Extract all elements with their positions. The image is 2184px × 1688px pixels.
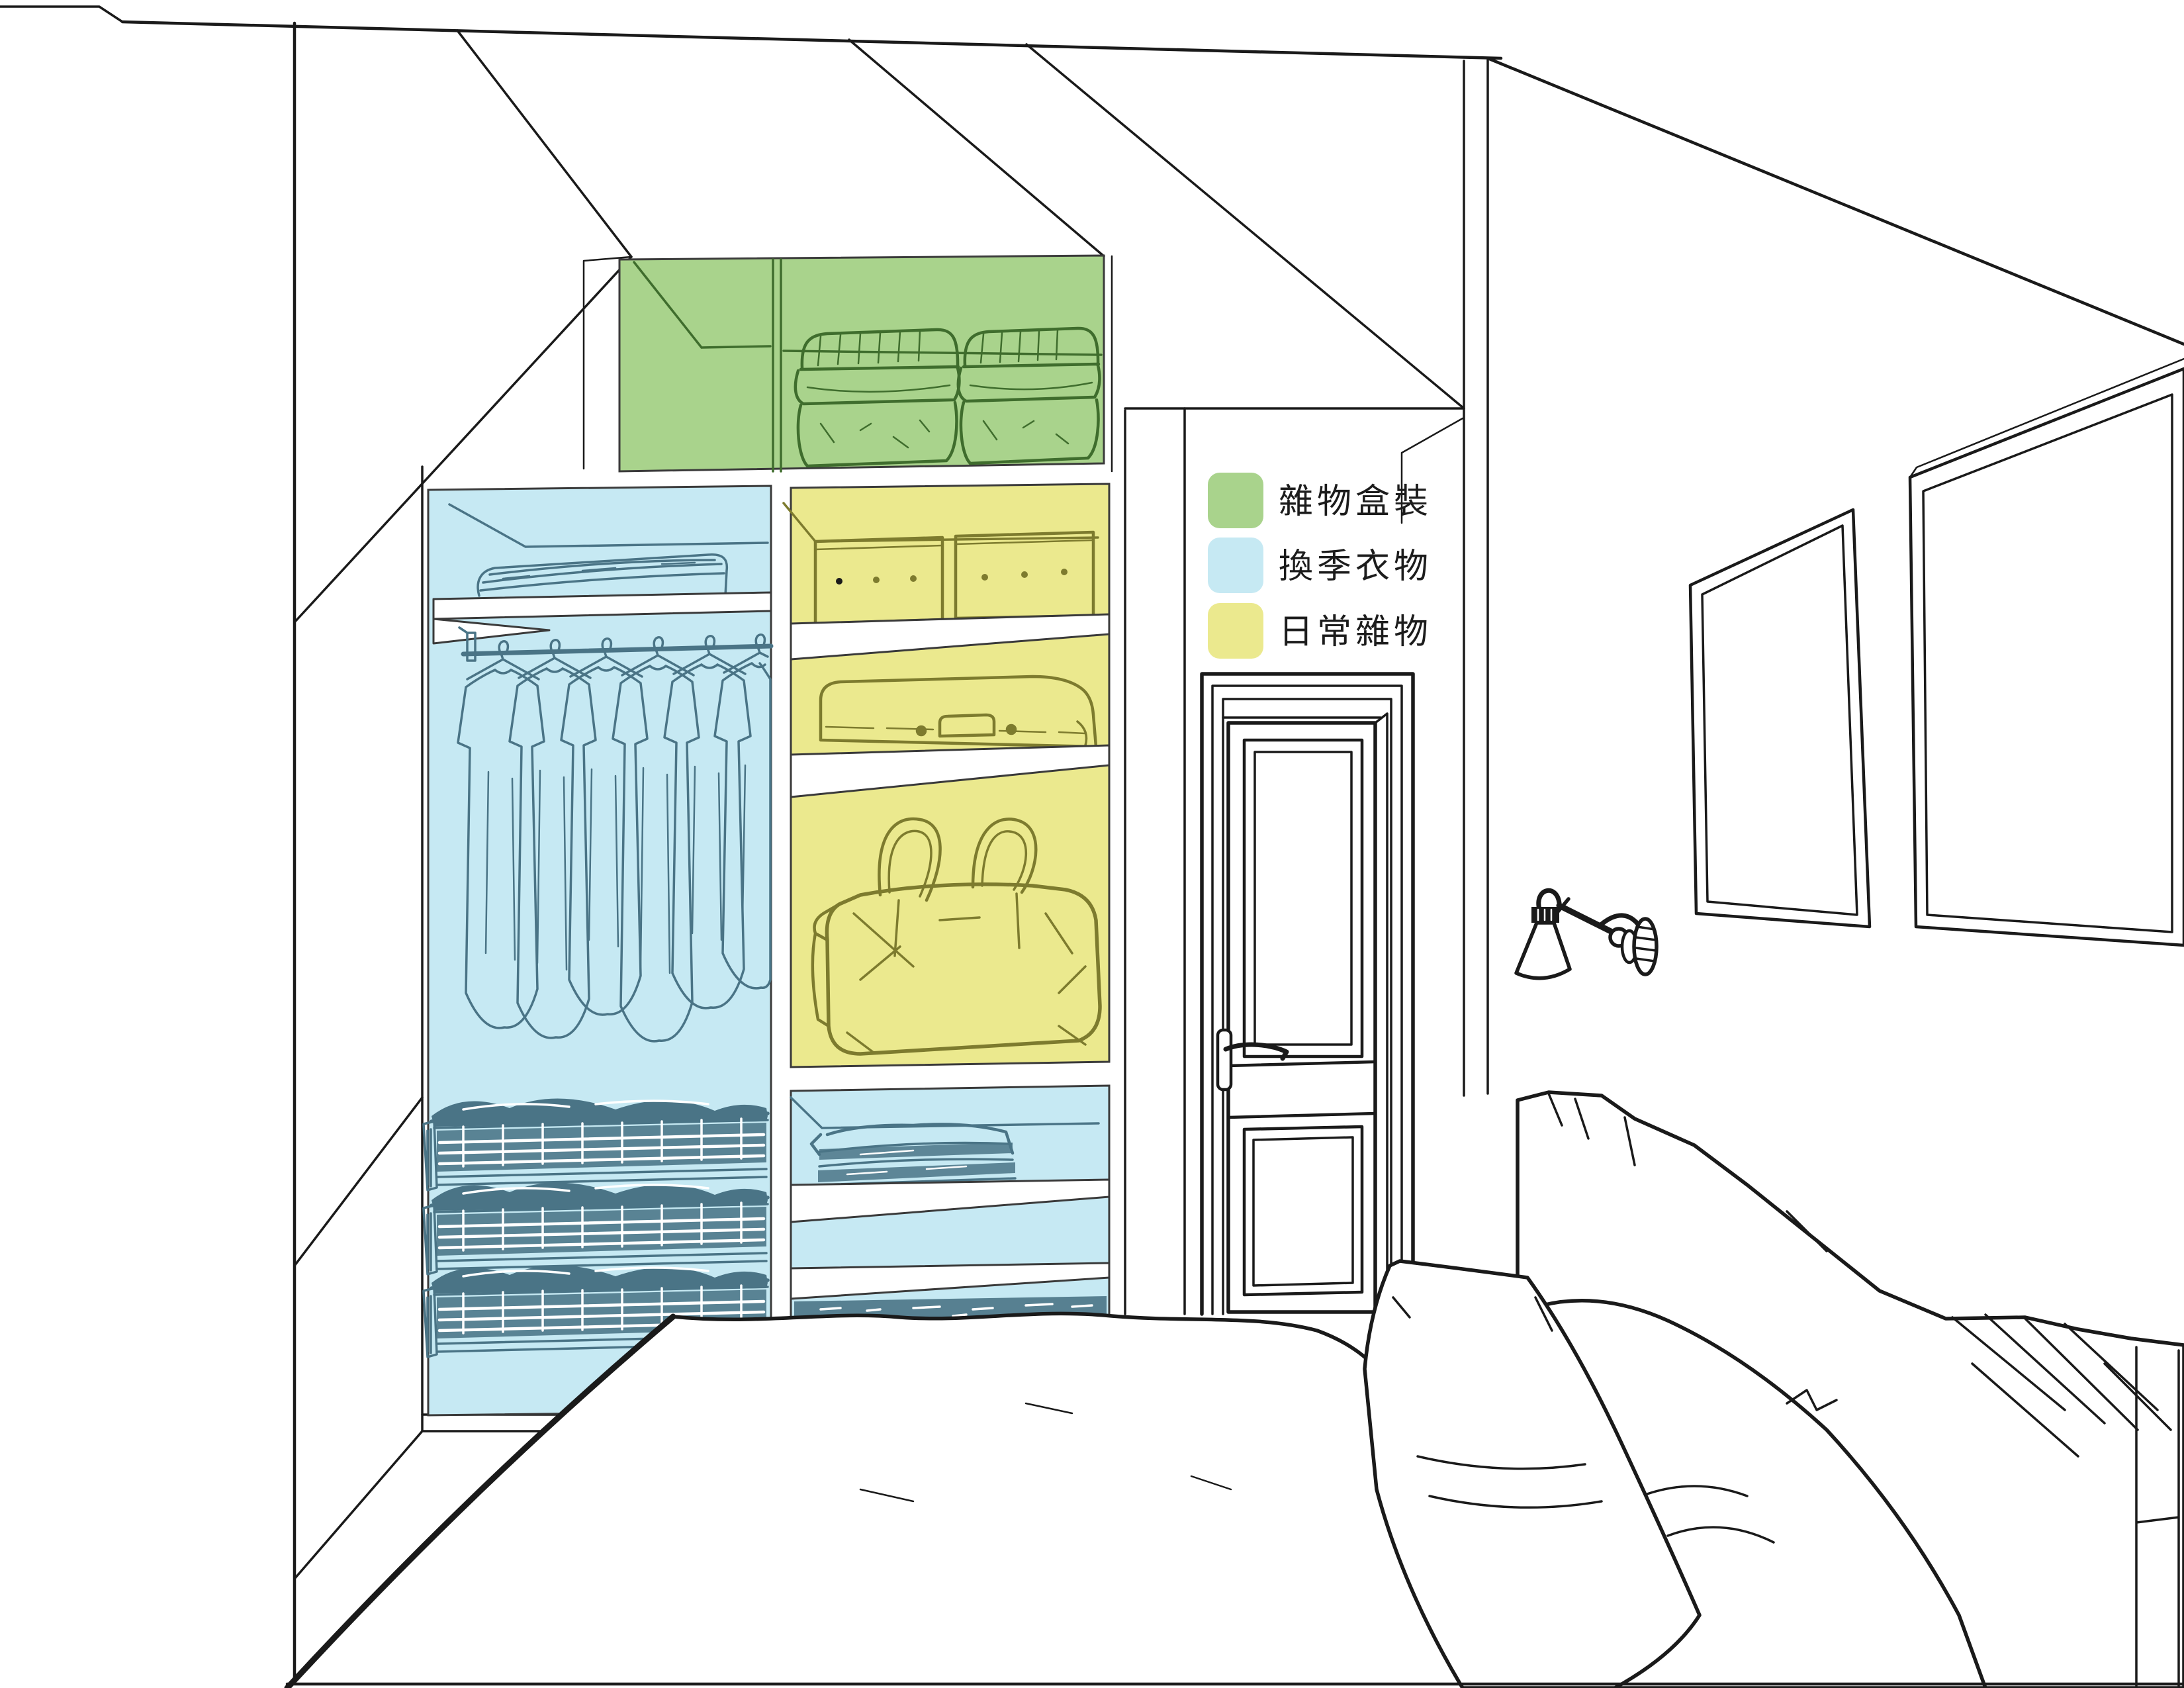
legend-label-daily-misc: 日常雜物 — [1279, 613, 1432, 651]
bedroom-storage-diagram: 雜物盒裝 換季衣物 日常雜物 — [0, 0, 2184, 1688]
ceiling-ledge-line — [0, 7, 122, 22]
left-wall-diagonal-lower — [295, 1098, 422, 1266]
lamp-shade — [1516, 923, 1570, 978]
door-upper-panel-inner — [1255, 752, 1351, 1045]
wall-lamp — [1516, 890, 1657, 978]
door-upper-panel — [1244, 740, 1362, 1056]
door-mid-rail — [1228, 1062, 1375, 1117]
ceiling-right-corner-line — [1488, 58, 2184, 344]
closet-bulkhead-diagonal-right — [849, 40, 1104, 256]
legend-swatch-daily-misc — [1208, 603, 1263, 659]
picture-frames — [1690, 359, 2184, 945]
closet-bulkhead-diagonal-left — [457, 30, 631, 257]
legend-swatch-misc-boxed — [1208, 473, 1263, 528]
legend: 雜物盒裝 換季衣物 日常雜物 — [1208, 473, 1432, 659]
ceiling-line — [122, 22, 1501, 58]
picture-frame-left — [1690, 510, 1870, 927]
door-lower-panel — [1244, 1127, 1362, 1295]
lamp-elbow-loop — [1602, 915, 1640, 927]
closet — [424, 256, 1109, 1415]
door-lower-panel-inner — [1253, 1137, 1353, 1286]
door-frame-inner — [1223, 699, 1391, 1314]
legend-label-misc-boxed: 雜物盒裝 — [1279, 483, 1432, 521]
picture-frame-right — [1910, 369, 2184, 945]
door — [1202, 674, 1413, 1314]
door-handle — [1218, 1030, 1287, 1090]
legend-label-seasonal-clothing: 換季衣物 — [1279, 547, 1432, 586]
zone-misc-boxed — [619, 256, 1104, 471]
lamp-hook — [1539, 890, 1559, 910]
door-frame-mid — [1212, 686, 1402, 1314]
door-frame-outer — [1202, 674, 1413, 1314]
legend-swatch-seasonal-clothing — [1208, 538, 1263, 593]
floor-corner-diagonal — [295, 1431, 422, 1579]
